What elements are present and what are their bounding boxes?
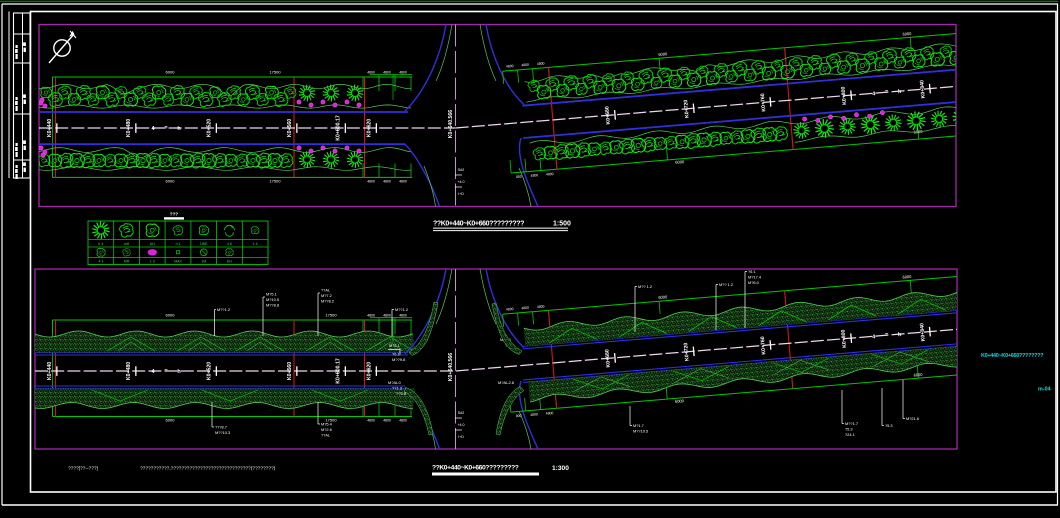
svg-text:=: = [164,125,167,131]
svg-text:I+D: I+D [458,192,464,196]
svg-text:mH: mH [124,242,130,246]
svg-text:1:500: 1:500 [553,220,571,227]
svg-text:4800: 4800 [367,419,375,423]
svg-text:+4.0: +4.0 [457,423,464,427]
svg-text:4800: 4800 [383,419,391,423]
svg-text:M?AL2.8: M?AL2.8 [498,380,515,385]
svg-text:1 3: 1 3 [150,259,155,263]
svg-text:M?21.6: M?21.6 [906,416,919,421]
svg-text:K0+560: K0+560 [287,362,293,380]
svg-text:M?2.6: M?2.6 [321,427,332,432]
svg-text:M?5.1: M?5.1 [266,292,277,297]
svg-text:M??8.8: M??8.8 [266,302,279,307]
svg-text:MAX: MAX [174,259,182,263]
svg-text:????[??--???]: ????[??--???] [68,466,98,472]
svg-text:=: = [885,332,889,338]
svg-text:4800: 4800 [399,180,407,184]
svg-text:17500: 17500 [325,313,337,318]
svg-text:M?2.1: M?2.1 [389,343,400,348]
svg-text:4800: 4800 [521,306,529,311]
svg-text:4800: 4800 [537,304,545,309]
svg-text:4800: 4800 [367,180,375,184]
svg-text:?5.3: ?5.3 [845,426,853,431]
svg-text:Ir 4: Ir 4 [98,242,103,246]
svg-text:??K0+440~K0+660?????????: ??K0+440~K0+660????????? [433,221,524,228]
svg-text:K0+640.566: K0+640.566 [448,110,454,139]
svg-text:6000: 6000 [658,51,668,57]
svg-text:M??9.8: M??9.8 [392,357,406,362]
svg-text:M?17.4: M?17.4 [748,274,762,279]
svg-text:1M: 1M [201,259,206,263]
svg-text:K0+480: K0+480 [126,119,132,137]
svg-text:S#2: S#2 [458,411,464,415]
svg-text:M?7.2: M?7.2 [321,293,332,298]
svg-text:M??10.5: M??10.5 [633,428,648,433]
svg-text:4800: 4800 [399,419,407,423]
svg-text:4 3: 4 3 [98,259,103,263]
svg-text:?5.1: ?5.1 [748,269,756,274]
svg-text:M?? 1.2: M?? 1.2 [638,284,652,289]
svg-text:4800: 4800 [537,61,545,66]
svg-text:=: = [164,368,167,374]
svg-text:M??1.2: M??1.2 [395,307,408,312]
svg-text:4800: 4800 [399,71,407,75]
svg-text:?24.1: ?24.1 [845,432,855,437]
svg-text:4800: 4800 [546,411,554,416]
svg-text:K0+440~K0+660????????: K0+440~K0+660???????? [981,353,1043,359]
svg-text:4800: 4800 [530,412,538,417]
svg-text:???8.7: ???8.7 [215,425,227,430]
svg-text:I+D: I+D [458,435,464,439]
svg-text:M??8.2: M??8.2 [321,298,334,303]
svg-text:K0+440: K0+440 [47,362,53,380]
svg-text:M?1.7: M?1.7 [633,423,644,428]
svg-text:K0+520: K0+520 [207,362,213,380]
svg-text:6000: 6000 [913,372,923,378]
svg-text:4800: 4800 [530,173,538,178]
svg-text:MR: MR [124,259,130,263]
svg-text:6000: 6000 [166,70,176,75]
svg-text:M?6.0: M?6.0 [748,280,760,285]
svg-text:6000: 6000 [902,274,912,280]
svg-text:6000: 6000 [675,398,685,404]
svg-text:4800: 4800 [506,307,514,312]
svg-text:1:300: 1:300 [552,465,569,472]
svg-text:K0+560: K0+560 [287,119,293,137]
svg-text:K0+440: K0+440 [47,119,53,137]
svg-text:17500: 17500 [269,70,281,75]
svg-text:6000: 6000 [166,418,176,423]
svg-text:4800: 4800 [367,71,375,75]
svg-text:??1.3: ??1.3 [392,386,403,391]
svg-text:M??1.2: M??1.2 [217,307,230,312]
svg-text:M?5.4: M?5.4 [321,422,333,427]
svg-text:EH: EH [227,259,232,263]
svg-text:6000: 6000 [675,159,685,165]
svg-text:??AL: ??AL [321,288,331,293]
svg-text:800: 800 [516,414,522,418]
svg-text:4800: 4800 [546,172,554,177]
svg-text:M??10.3: M??10.3 [215,430,230,435]
svg-text:?5.3: ?5.3 [885,423,893,428]
svg-text:K0+620: K0+620 [367,362,373,380]
svg-text:17500: 17500 [269,179,281,184]
svg-text:K0+480: K0+480 [126,362,132,380]
svg-text:4800: 4800 [399,314,407,318]
svg-text:800: 800 [516,175,522,179]
svg-text:M?? 1.2: M?? 1.2 [719,282,733,287]
svg-text:4800: 4800 [383,314,391,318]
svg-text:?6.1: ?6.1 [392,352,401,357]
svg-text:1 4: 1 4 [253,242,258,246]
svg-text:1WE: 1WE [200,242,208,246]
svg-text:AH: AH [150,242,155,246]
svg-text:M?10.5: M?10.5 [266,297,279,302]
svg-text:4800: 4800 [367,314,375,318]
svg-text:4800: 4800 [383,71,391,75]
svg-text:4800: 4800 [506,64,514,69]
svg-text:+4.0: +4.0 [457,180,464,184]
svg-text:=: = [885,89,889,95]
svg-text:6000: 6000 [902,31,912,37]
svg-text:??K0+440~K0+660?????????: ??K0+440~K0+660????????? [432,465,519,472]
svg-text:??AL: ??AL [321,432,331,437]
svg-text:h 1: h 1 [176,242,181,246]
svg-text:K0+520: K0+520 [207,119,213,137]
svg-text:4800: 4800 [383,180,391,184]
svg-text:K0+640.566: K0+640.566 [448,353,454,382]
svg-text:4800: 4800 [521,63,529,68]
svg-text:m-04: m-04 [1038,387,1051,393]
svg-text:S#2: S#2 [458,168,464,172]
svg-text:K0+600.17: K0+600.17 [336,115,342,141]
svg-text:???: ??? [170,212,179,217]
svg-text:6000: 6000 [166,313,176,318]
svg-text:K0+600.17: K0+600.17 [336,358,342,384]
svg-text:K0+620: K0+620 [367,119,373,137]
svg-text:4 6: 4 6 [227,242,232,246]
svg-text:M??1.7: M??1.7 [845,421,858,426]
svg-text:6000: 6000 [166,179,176,184]
svg-text:???????????,??????????????????: ???????????,????????????????????????????… [140,466,276,472]
svg-text:6000: 6000 [658,294,668,300]
svg-text:M?AL0: M?AL0 [388,380,401,385]
